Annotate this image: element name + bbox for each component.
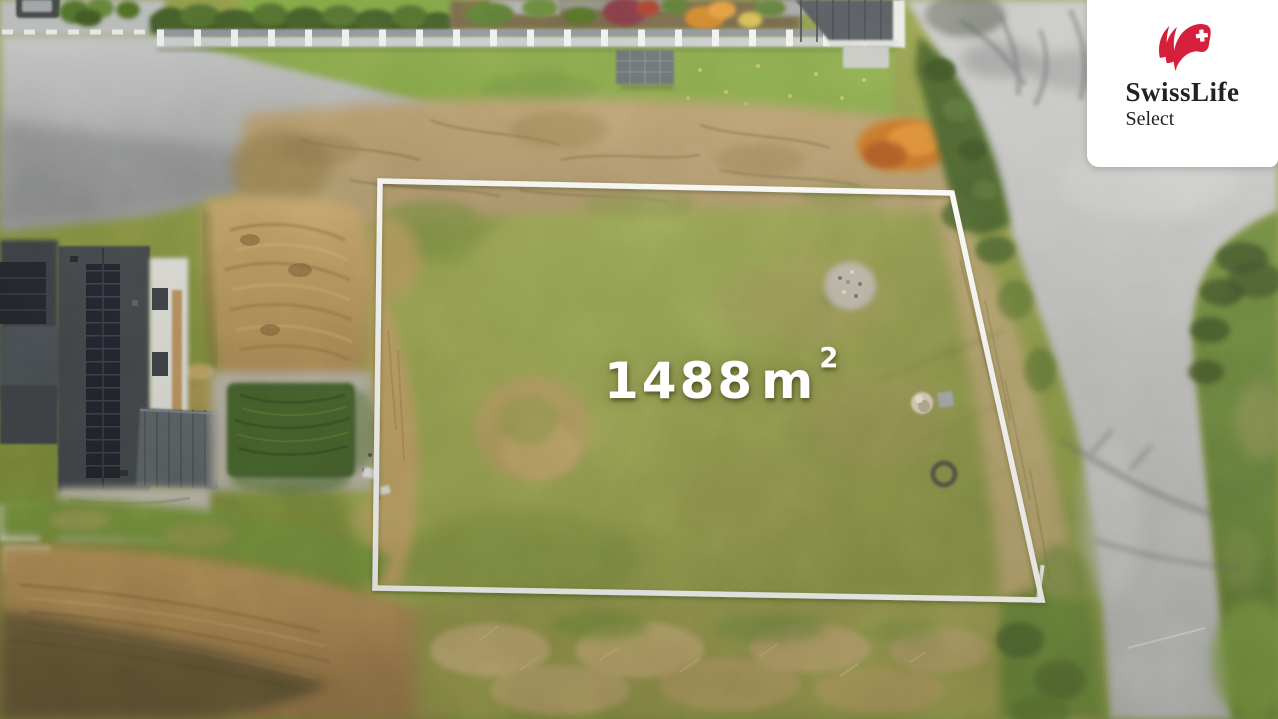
aerial-photo-land-plot: 1488m2 SwissLife Select <box>0 0 1278 719</box>
swisslife-flag-icon <box>1153 14 1213 76</box>
watermark-text: SwissLife Select <box>1125 78 1239 130</box>
product-name: Select <box>1125 108 1239 130</box>
watermark-card: SwissLife Select <box>1087 0 1278 167</box>
brand-name: SwissLife <box>1125 78 1239 106</box>
area-label: 1488m2 <box>604 356 838 406</box>
area-unit: m <box>761 352 816 410</box>
area-value: 1488 <box>604 352 755 410</box>
area-superscript: 2 <box>819 342 838 374</box>
